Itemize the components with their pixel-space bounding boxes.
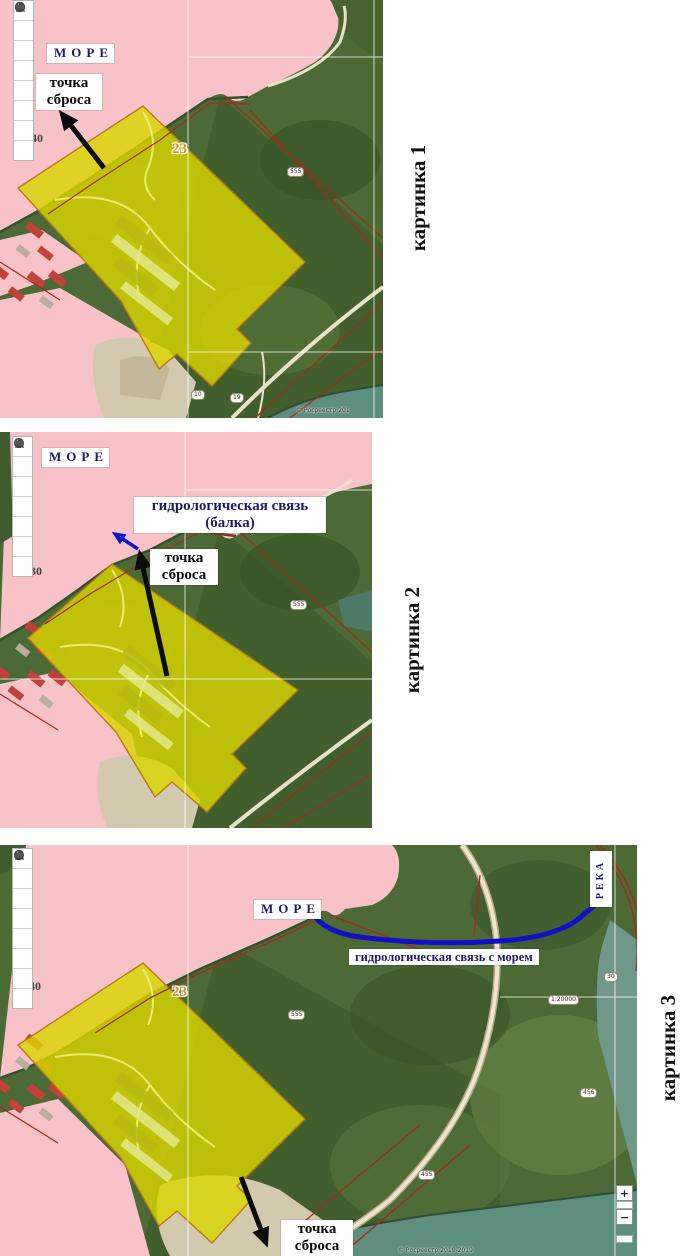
zoom-out-button[interactable]: − xyxy=(616,1209,633,1225)
scale-bar xyxy=(616,1235,633,1243)
card-tool-button[interactable] xyxy=(13,557,32,576)
river-label: РЕКА xyxy=(590,851,612,907)
history-tool-button[interactable] xyxy=(14,121,33,141)
zoom-in-button[interactable]: + xyxy=(616,1185,633,1201)
map-1-art xyxy=(0,0,383,418)
search-tool-button[interactable] xyxy=(14,21,33,41)
map-2-art xyxy=(0,432,372,828)
card-icon xyxy=(13,437,25,449)
highlighter-tool-button[interactable] xyxy=(13,477,32,497)
printer-tool-button[interactable] xyxy=(13,949,32,969)
search-tool-button[interactable] xyxy=(13,869,32,889)
parcel-id-pill: 555 xyxy=(290,600,307,610)
discharge-line2: сброса xyxy=(295,1238,340,1254)
card-tool-button[interactable] xyxy=(13,989,32,1008)
star-tool-button[interactable] xyxy=(14,81,33,101)
map-toolbar xyxy=(12,848,33,1009)
hydro-sea-connection-label: гидрологическая связь с морем xyxy=(349,949,539,965)
discharge-point-label: точка сброса xyxy=(150,549,218,585)
discharge-line1: точка xyxy=(165,550,204,566)
figure-caption-2: картинка 2 xyxy=(397,560,427,720)
star-tool-button[interactable] xyxy=(13,929,32,949)
figure-caption-1: картинка 1 xyxy=(403,118,433,278)
sea-label: МОРЕ xyxy=(254,900,321,919)
parcel-id-pill: 456 xyxy=(580,1088,597,1098)
star-tool-button[interactable] xyxy=(13,497,32,517)
history-tool-button[interactable] xyxy=(13,537,32,557)
map-attribution: © Росреестр 201 xyxy=(296,407,350,414)
discharge-line1: точка xyxy=(298,1221,337,1237)
history-tool-button[interactable] xyxy=(13,969,32,989)
highlighter-tool-button[interactable] xyxy=(13,909,32,929)
map-attribution: © Росреестр 2010-2019 xyxy=(398,1247,473,1254)
parcel-id-pill: 10 xyxy=(191,390,205,400)
map-toolbar xyxy=(13,0,34,161)
hydro-line2: (балка) xyxy=(205,515,254,531)
figure-caption-3: картинка 3 xyxy=(653,968,683,1128)
parcel-id-pill: 455 xyxy=(418,1170,435,1180)
discharge-point-label: точка сброса xyxy=(36,74,102,110)
pencil-tool-button[interactable] xyxy=(13,457,32,477)
sea-label: МОРЕ xyxy=(42,448,109,467)
sea-label: МОРЕ xyxy=(47,44,114,63)
hydro-connection-label: гидрологическая связь (балка) xyxy=(134,497,326,533)
discharge-line2: сброса xyxy=(47,92,92,108)
printer-tool-button[interactable] xyxy=(14,101,33,121)
parcel-id-pill: 555 xyxy=(288,1010,305,1020)
zoom-slider[interactable] xyxy=(616,1201,633,1209)
map-2[interactable] xyxy=(0,432,372,828)
discharge-line2: сброса xyxy=(162,567,207,583)
parcel-id-pill: 19 xyxy=(230,393,244,403)
grid-coordinate-pill: 30 xyxy=(604,972,618,982)
printer-tool-button[interactable] xyxy=(13,517,32,537)
discharge-line1: точка xyxy=(50,75,89,91)
highlighter-tool-button[interactable] xyxy=(14,61,33,81)
pencil-tool-button[interactable] xyxy=(13,889,32,909)
map-toolbar xyxy=(12,436,33,577)
map-scale-label: 1:20000 xyxy=(548,995,579,1005)
hydro-line1: гидрологическая связь xyxy=(152,498,308,514)
parcel-id-pill: 555 xyxy=(287,167,304,177)
parcel-number: 23 xyxy=(172,141,187,158)
card-tool-button[interactable] xyxy=(14,141,33,160)
discharge-point-label: точка сброса xyxy=(281,1220,353,1256)
pencil-tool-button[interactable] xyxy=(14,41,33,61)
figure-sheet: МОРЕ точка сброса 23 40 555 10 19 © Роср… xyxy=(0,0,695,1256)
card-icon xyxy=(14,1,26,13)
river-label-text: РЕКА xyxy=(596,859,607,898)
map-1[interactable] xyxy=(0,0,383,418)
parcel-number: 23 xyxy=(172,984,187,1001)
card-icon xyxy=(13,849,25,861)
